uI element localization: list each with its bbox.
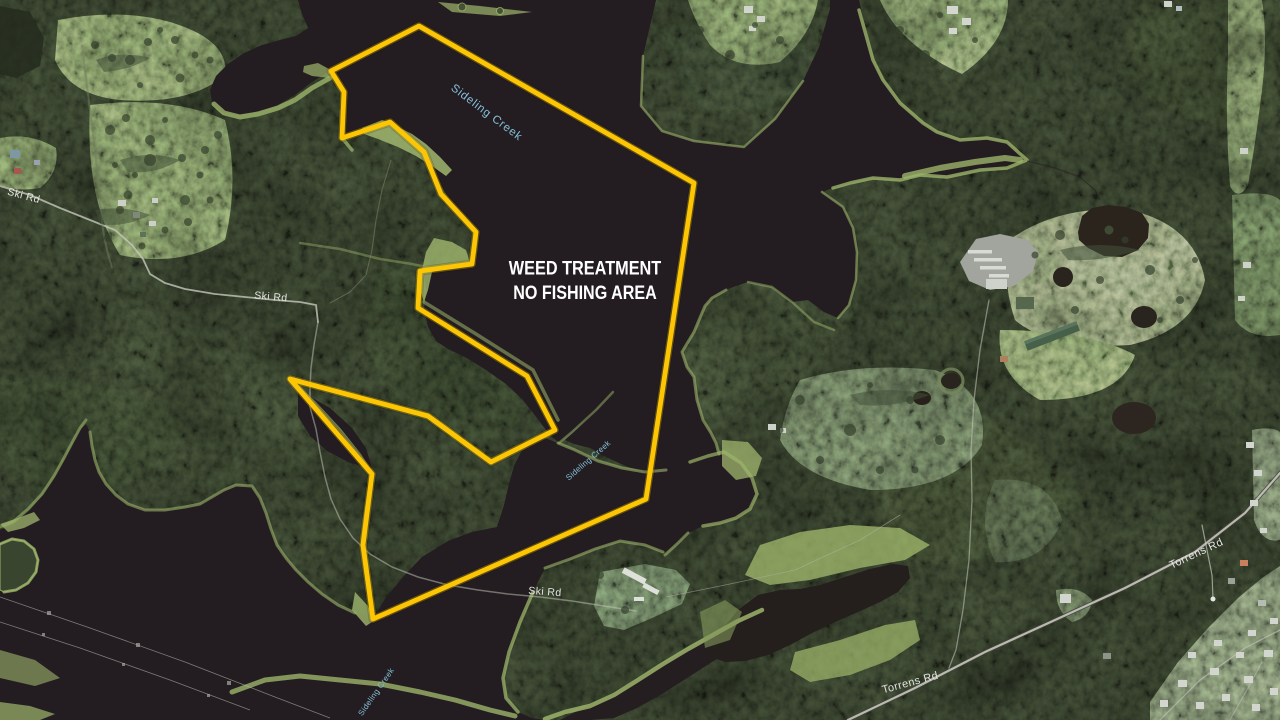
svg-text:NO FISHING AREA: NO FISHING AREA <box>513 282 657 304</box>
svg-text:Ski Rd: Ski Rd <box>528 585 562 599</box>
svg-text:WEED TREATMENT: WEED TREATMENT <box>509 258 662 280</box>
